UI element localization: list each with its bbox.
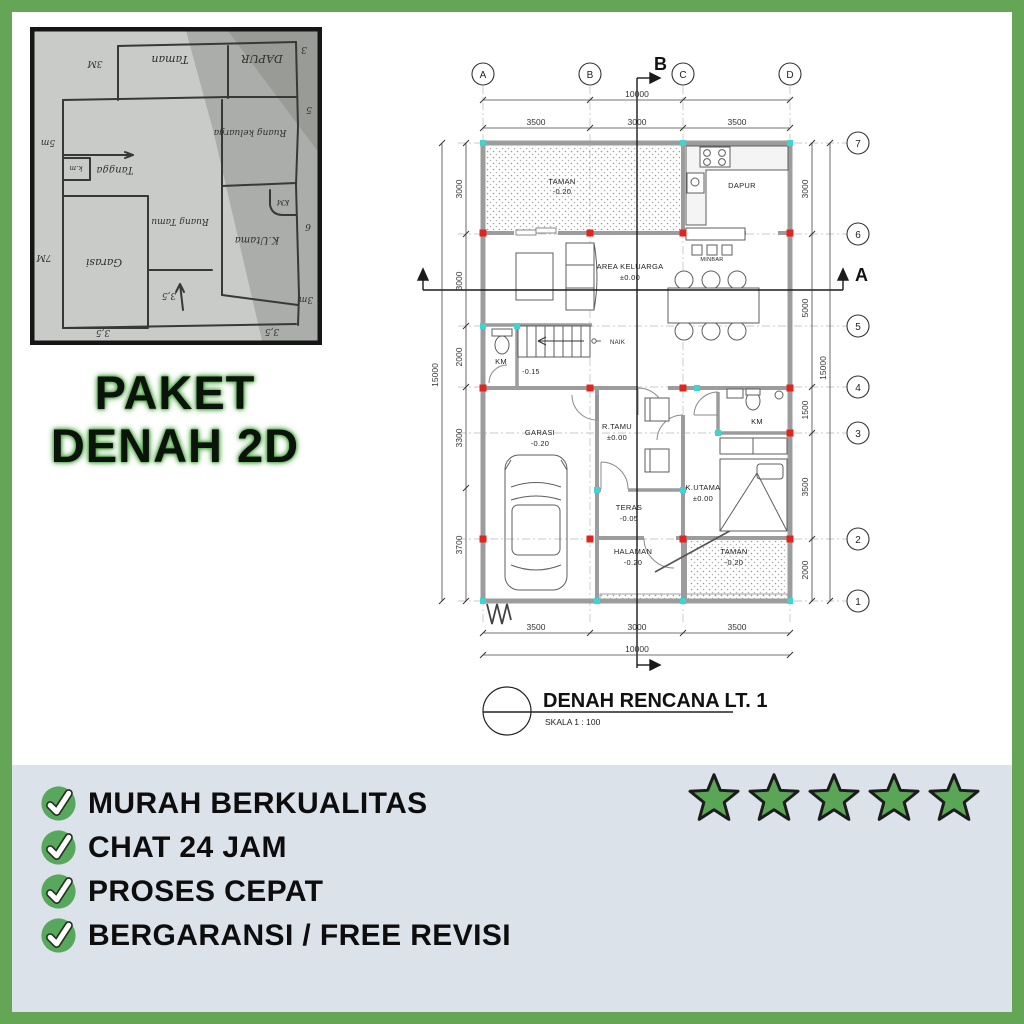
plan-title-block: DENAH RENCANA LT. 1 SKALA 1 : 100 — [483, 687, 767, 735]
dim-bottom-3: 3500 — [728, 622, 747, 632]
grid-row-3: 3 — [855, 429, 861, 440]
sketch-label-dapur: DAPUR — [241, 52, 284, 65]
feature-item: BERGARANSI / FREE REVISI — [40, 917, 1012, 954]
package-title-line2: DENAH 2D — [22, 419, 328, 472]
dim-left-4: 3300 — [454, 428, 464, 447]
sketch-dim-7m-kiri: 7M — [36, 252, 52, 262]
sketch-label-ruang-keluarga: Ruang keluarga — [214, 127, 288, 137]
package-title: PAKET DENAH 2D — [22, 366, 328, 472]
feature-item: PROSES CEPAT — [40, 873, 1012, 910]
grid-row-7: 7 — [855, 139, 861, 150]
car-icon — [505, 455, 567, 590]
living-rug — [516, 253, 553, 300]
star-icon — [806, 771, 862, 827]
stove-icon — [700, 147, 730, 167]
dim-top-3: 3500 — [728, 117, 747, 127]
stairs-icon — [518, 326, 601, 357]
sketch-dim-5-kanan: 5 — [306, 104, 312, 114]
grid-col-c: C — [679, 70, 686, 81]
room-garasi-name: GARASI — [525, 428, 555, 437]
dim-top-1: 3500 — [527, 117, 546, 127]
bedroom-furniture — [720, 438, 787, 531]
feature-label: MURAH BERKUALITAS — [88, 787, 428, 821]
room-halaman-level: -0.20 — [624, 558, 643, 567]
room-garasi-level: -0.20 — [531, 439, 550, 448]
floor-plan: B A A B C D 7 6 5 4 3 2 1 — [408, 38, 892, 758]
sketch-label-taman: Taman — [151, 53, 188, 66]
sketch-label-garasi: Garasi — [86, 256, 122, 269]
toilet-icon — [492, 329, 512, 354]
sketch-dim-5m-kiri: 5m — [41, 137, 55, 147]
dim-bottom-total: 10000 — [625, 644, 649, 654]
sketch-dim-35-bawah-kiri: 3,5 — [96, 327, 111, 337]
room-taman-level: -0.20 — [553, 187, 572, 196]
check-icon — [40, 829, 77, 866]
grid-row-6: 6 — [855, 230, 861, 241]
room-kutama-level: ±0.00 — [693, 494, 713, 503]
star-icon — [866, 771, 922, 827]
sink-icon — [687, 173, 704, 193]
star-icon — [746, 771, 802, 827]
sketch-label-km-tangga: k.m — [69, 164, 82, 172]
feature-label: PROSES CEPAT — [88, 875, 323, 909]
label-stair-level: -0.15 — [522, 369, 539, 376]
dim-left-total: 15000 — [430, 363, 440, 387]
grid-row-5: 5 — [855, 322, 861, 333]
dim-right-2: 5000 — [800, 298, 810, 317]
star-icon — [926, 771, 982, 827]
plan-title: DENAH RENCANA LT. 1 — [543, 690, 767, 712]
dim-left-5: 3700 — [454, 535, 464, 554]
feature-label: BERGARANSI / FREE REVISI — [88, 919, 511, 953]
room-taman2-level: -0.20 — [725, 558, 744, 567]
room-rtamu-level: ±0.00 — [607, 433, 627, 442]
dim-top-2: 3000 — [628, 117, 647, 127]
room-keluarga-name: AREA KELUARGA — [597, 262, 664, 271]
room-keluarga-level: ±0.00 — [620, 273, 640, 282]
room-km2-name: KM — [751, 417, 763, 426]
section-b-label: B — [654, 54, 667, 74]
section-a-label: A — [855, 265, 868, 285]
star-icon — [686, 771, 742, 827]
hand-sketch-drawing: Taman DAPUR Ruang keluarga Tangga k.m Ga… — [30, 27, 322, 345]
sketch-label-k-utama: K.Utama — [235, 234, 281, 245]
dim-right-4: 3500 — [800, 477, 810, 496]
grid-col-b: B — [587, 70, 594, 81]
dim-right-3: 1500 — [800, 400, 810, 419]
feature-item: CHAT 24 JAM — [40, 829, 1012, 866]
room-taman2-name: TAMAN — [720, 547, 747, 556]
dining-set — [668, 271, 759, 340]
grid-col-a: A — [480, 70, 487, 81]
dim-top-total: 10000 — [625, 89, 649, 99]
room-teras-level: -0.05 — [620, 514, 639, 523]
feature-label: CHAT 24 JAM — [88, 831, 287, 865]
plan-scale: SKALA 1 : 100 — [545, 717, 601, 727]
features-banner: MURAH BERKUALITAS CHAT 24 JAM PROSES CEP… — [12, 765, 1012, 1012]
label-naik: NAIK — [610, 340, 625, 346]
gate-icon — [487, 604, 511, 624]
hand-sketch-photo: Taman DAPUR Ruang keluarga Tangga k.m Ga… — [30, 27, 322, 345]
sketch-dim-6-kanan: 6 — [305, 221, 311, 231]
bathroom-fixtures — [727, 389, 783, 410]
label-minbar: MINBAR — [700, 257, 723, 263]
room-dapur-name: DAPUR — [728, 181, 756, 190]
minibar-stool — [692, 245, 702, 255]
check-icon — [40, 873, 77, 910]
room-km1-name: KM — [495, 357, 507, 366]
sketch-dim-35-bawah-kanan: 3,5 — [265, 326, 280, 336]
check-icon — [40, 917, 77, 954]
dim-right-5: 2000 — [800, 560, 810, 579]
sketch-label-tangga: Tangga — [96, 164, 133, 175]
sketch-label-km-kamar: KM — [276, 198, 290, 206]
room-teras-name: TERAS — [616, 503, 643, 512]
dim-left-3: 2000 — [454, 347, 464, 366]
room-rtamu-name: R.TAMU — [602, 422, 632, 431]
sketch-dim-3m-kiri: 3M — [87, 58, 103, 68]
sketch-dim-3m-kanan: 3m — [299, 294, 313, 304]
grid-row-2: 2 — [855, 535, 861, 546]
sketch-label-ruang-tamu: Ruang Tamu — [151, 216, 210, 226]
room-taman-name: TAMAN — [548, 177, 575, 186]
dim-right-1: 3000 — [800, 179, 810, 198]
grid-col-d: D — [786, 70, 793, 81]
dim-right-total: 15000 — [818, 356, 828, 380]
sofa-icon — [566, 243, 597, 310]
dim-bottom-2: 3000 — [628, 622, 647, 632]
rating-stars — [686, 771, 982, 827]
dim-left-1: 3000 — [454, 179, 464, 198]
package-title-line1: PAKET — [22, 366, 328, 419]
dim-left-2: 3000 — [454, 271, 464, 290]
minibar-stool — [722, 245, 732, 255]
grid-row-4: 4 — [855, 383, 861, 394]
minibar-stool — [707, 245, 717, 255]
room-kutama-name: K.UTAMA — [686, 483, 721, 492]
dim-bottom-1: 3500 — [527, 622, 546, 632]
grid-row-1: 1 — [855, 597, 861, 608]
guest-chairs — [645, 398, 669, 472]
minibar-counter — [686, 228, 745, 240]
sketch-dim-35-tengah: 3,5 — [162, 290, 177, 300]
sketch-dim-3-kanan: 3 — [301, 44, 307, 54]
check-icon — [40, 785, 77, 822]
room-halaman-name: HALAMAN — [614, 547, 652, 556]
floor-plan-drawing: B A A B C D 7 6 5 4 3 2 1 — [408, 38, 892, 758]
